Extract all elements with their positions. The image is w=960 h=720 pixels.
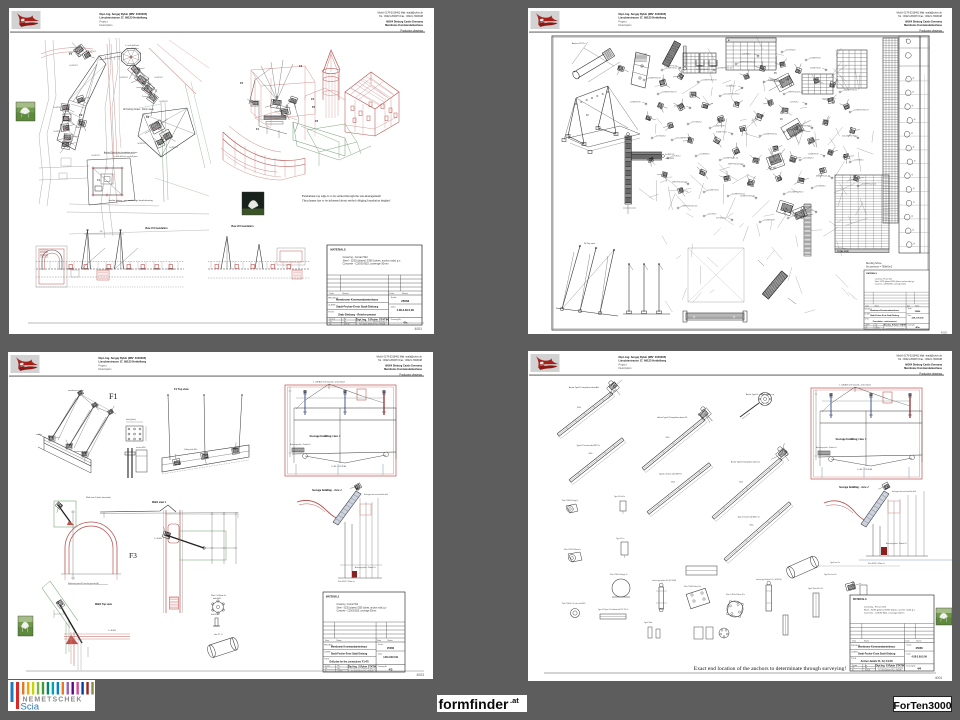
svg-text:Stadt-Fecher-Erste Stadt Dieb: Stadt-Fecher-Erste Stadt Dieburg: [336, 306, 379, 309]
svg-text:1xDMPS/12: 1xDMPS/12: [169, 147, 178, 149]
svg-text:4/4: 4/4: [917, 667, 921, 671]
svg-text:F6: F6: [146, 115, 150, 119]
svg-text:Dipl.-Ing. Sergej Rybin (MN: Dipl.-Ing. Sergej Rybin (MN° 4046305): [619, 355, 667, 359]
svg-text:Date:: Date:: [378, 652, 383, 655]
svg-text:2xTWQ/12: 2xTWQ/12: [692, 122, 702, 124]
svg-text:Stadt-Fecher-Erste Stadt Dieb: Stadt-Fecher-Erste Stadt Dieburg: [858, 652, 896, 655]
svg-text:formfinder: formfinder: [439, 696, 510, 712]
svg-text:2xTWQ/12: 2xTWQ/12: [804, 158, 814, 160]
svg-text:F6: F6: [780, 119, 783, 121]
svg-text:Storage building view 1: Storage building view 1: [835, 437, 866, 441]
svg-text:Steel - S235 (plates) S355 (: Steel - S235 (plates) S355 (tubes, ancho…: [875, 280, 915, 283]
svg-text:F3: F3: [129, 551, 137, 560]
svg-text:F6 Top view: F6 Top view: [584, 243, 596, 245]
svg-text:4004: 4004: [935, 676, 942, 680]
svg-text:anchor: anchor: [36, 433, 42, 436]
svg-text:Anchor T07 1x: Anchor T07 1x: [572, 42, 586, 45]
svg-text:2xDM/70/12: 2xDM/70/12: [716, 132, 728, 134]
svg-text:Steel - S235 (plates) S355 (: Steel - S235 (plates) S355 (tubes, ancho…: [337, 606, 388, 609]
svg-text:Plate T100/10 fixing 1x: Plate T100/10 fixing 1x: [562, 499, 578, 502]
svg-text:1xGMS/12: 1xGMS/12: [816, 186, 826, 188]
svg-text:MATERIALS: MATERIALS: [326, 595, 340, 598]
svg-text:Membrane Kommandantenhaus: Membrane Kommandantenhaus: [384, 368, 423, 371]
svg-text:1xDMPS/70: 1xDMPS/70: [810, 58, 822, 60]
svg-text:Tel.: 06221-830673 Fax.: 06: Tel.: 06221-830673 Fax.: 06221-7903048: [898, 358, 943, 361]
svg-text:2xS-DMPS/70/12: 2xS-DMPS/70/12: [788, 192, 804, 194]
svg-text:F2: F2: [240, 81, 244, 85]
svg-text:Tel.: 06221-830673 Fax.: 06: Tel.: 06221-830673 Fax.: 06221-7903048: [378, 359, 423, 362]
svg-text:1xDMPS/12: 1xDMPS/12: [159, 101, 168, 103]
svg-text:Steel - S235 (plates) S355 (: Steel - S235 (plates) S355 (tubes, ancho…: [864, 609, 916, 612]
svg-text:Wall1 view 1: Wall1 view 1: [152, 501, 167, 504]
svg-text:Plate T100/10 60mm 1x: Plate T100/10 60mm 1x: [564, 548, 581, 551]
svg-text:4003: 4003: [416, 673, 424, 677]
svg-text:F1: F1: [97, 178, 101, 182]
svg-text:TITLE:: TITLE:: [851, 658, 857, 660]
svg-text:Description: Description: [619, 23, 633, 27]
svg-text:1xTWQ/70/120: 1xTWQ/70/120: [696, 69, 709, 71]
svg-text:Concrete - C20/30 B25, cover: Concrete - C20/30 B25, coverage 50mm: [875, 282, 907, 285]
svg-text:3000: 3000: [589, 453, 593, 455]
svg-text:Lieschtestrasse 17, 69123 H: Lieschtestrasse 17, 69123 Heidelberg: [619, 359, 667, 363]
svg-text:tube P1 1x: tube P1 1x: [214, 633, 223, 636]
svg-text:Plan 4/202 1:2/floor 1x: Plan 4/202 1:2/floor 1x: [338, 580, 355, 583]
svg-text:1xDMPS/70: 1xDMPS/70: [630, 102, 642, 104]
svg-text:Lieschtestrasse 17, 69123 H: Lieschtestrasse 17, 69123 Heidelberg: [100, 16, 148, 20]
svg-text:2xS-DMPS/70/12: 2xS-DMPS/70/12: [724, 94, 740, 96]
svg-text:Concrete - C20/30 B25, cover: Concrete - C20/30 B25, coverage 50mm: [864, 612, 905, 615]
svg-text:Anchor plates - see anchorage: Anchor plates - see anchorage bond drawi…: [108, 199, 153, 202]
svg-text:3xDMPS-5/1,20: 3xDMPS-5/1,20: [718, 68, 733, 70]
svg-text:Description: Description: [619, 366, 633, 370]
svg-text:1xS70/12: 1xS70/12: [790, 102, 799, 104]
svg-text:Plate T100/4 60mm 10x: Plate T100/4 60mm 10x: [684, 585, 701, 588]
svg-text:Tel.: 06221-830673 Fax.: 06: Tel.: 06221-830673 Fax.: 06221-7903048: [898, 15, 943, 18]
svg-text:anchor appl. bushes 0.1+ (F2,F: anchor appl. bushes 0.1+ (F2,F4 M): [756, 579, 782, 581]
svg-text:bolt M d20: bolt M d20: [211, 613, 219, 616]
svg-text:1 x Ø6 A2S 1/10 turnumb - 4/10: 1 x Ø6 A2S 1/10 turnumb - 4/10 embed: [839, 384, 870, 387]
svg-text:2xDM/70/12: 2xDM/70/12: [666, 68, 678, 70]
svg-text:Anchor Type/0.3 fixings/base a: Anchor Type/0.3 fixings/base above 4x: [731, 461, 760, 464]
svg-text:drill upper the anchored bar d: drill upper the anchored bar drill: [364, 493, 388, 496]
svg-text:Fundament top edge is to be se: Fundament top edge is to be settled thro…: [302, 194, 381, 198]
svg-text:drill upper the anchored bar d: drill upper the anchored bar drill: [892, 490, 916, 493]
svg-text:Anchor Type/0.1 fixings/base a: Anchor Type/0.1 fixings/base above/Anc: [569, 386, 599, 389]
svg-text:1xDMPS/70: 1xDMPS/70: [808, 154, 820, 156]
svg-text:2xDMPS70/12: 2xDMPS70/12: [764, 134, 778, 136]
svg-text:Covering - Ferrari 502: Covering - Ferrari 502: [337, 603, 359, 606]
svg-text:4/a: 4/a: [403, 321, 408, 325]
svg-text:Membrane Kommandantenhaus: Membrane Kommandantenhaus: [336, 298, 379, 302]
svg-text:Type of tension tube 88/57 1x: Type of tension tube 88/57 1x: [738, 516, 760, 519]
svg-text:Tel. 06221-830673 Fax. 790304: Tel. 06221-830673 Fax. 7903048: [351, 670, 374, 672]
svg-text:Date:: Date:: [906, 652, 911, 655]
svg-text:2xDMPS70/12: 2xDMPS70/12: [648, 78, 662, 80]
svg-text:DMPS70/12/1,20: DMPS70/12/1,20: [682, 206, 698, 208]
svg-text:F6: F6: [315, 119, 319, 123]
svg-text:Anchor details F1, F2, F4>F6: Anchor details F1, F2, F4>F6: [861, 660, 894, 663]
svg-text:TITLE:: TITLE:: [324, 658, 330, 660]
svg-text:1xDMPS/12: 1xDMPS/12: [154, 77, 163, 79]
svg-text:The planner has to be informed: The planner has to be informed about set…: [302, 199, 390, 203]
svg-text:Drawing-Nr:: Drawing-Nr:: [378, 665, 388, 668]
svg-text:1xGMS/12: 1xGMS/12: [674, 106, 684, 108]
svg-text:DMPS70/12/1,20: DMPS70/12/1,20: [672, 182, 688, 184]
svg-text:Project: Project: [100, 19, 108, 23]
svg-text:3xDMPS-5/1,20: 3xDMPS-5/1,20: [862, 184, 877, 186]
svg-text:Project: Project: [99, 363, 107, 367]
svg-text:TITLE:: TITLE:: [865, 319, 870, 321]
svg-text:Scale:: Scale:: [391, 297, 398, 299]
svg-text:Wall view 1 (back elevation): Wall view 1 (back elevation): [86, 496, 111, 499]
svg-text:TOTAL S235: TOTAL S235: [837, 250, 850, 253]
svg-text:Anchor Type/0.2 fixings/base a: Anchor Type/0.2 fixings/base above 0/6: [658, 416, 688, 419]
svg-text:1xS70/12: 1xS70/12: [672, 156, 681, 158]
svg-text:Drill plan for the connections: Drill plan for the connections F1>F5: [329, 660, 369, 663]
svg-text:2xTWQ/12: 2xTWQ/12: [786, 50, 796, 52]
svg-text:Scia: Scia: [21, 702, 40, 712]
svg-text:Membrane Kommandantenhaus: Membrane Kommandantenhaus: [904, 24, 943, 27]
svg-text:F1: F1: [256, 127, 260, 131]
svg-text:3xDMPS-5/1,20: 3xDMPS-5/1,20: [724, 158, 739, 160]
svg-text:Type2 Stub: Type2 Stub: [644, 621, 652, 624]
svg-text:Scale:: Scale:: [378, 644, 384, 646]
svg-text:1xS70/12: 1xS70/12: [742, 54, 751, 56]
svg-text:Anchorage plate - Podest 0.0: Anchorage plate - Podest 0.0: [886, 542, 907, 545]
svg-text:Set pressure = 760kN/m2: Set pressure = 760kN/m2: [866, 266, 893, 269]
svg-text:Plan 4/202 1:2/floor 1x: Plan 4/202 1:2/floor 1x: [868, 562, 885, 565]
svg-text:bolts M16: bolts M16: [213, 597, 221, 600]
svg-text:Stab-Dieburg - Reinforcement: Stab-Dieburg - Reinforcement: [338, 314, 376, 317]
svg-text:View #1 Foundation: View #1 Foundation: [145, 227, 168, 230]
svg-text:Membrane Kommandantenhaus: Membrane Kommandantenhaus: [904, 367, 943, 370]
svg-text:3xDMPS-5/1,20: 3xDMPS-5/1,20: [816, 176, 831, 178]
svg-text:Scale:: Scale:: [908, 308, 913, 310]
svg-text:25066: 25066: [915, 311, 920, 313]
svg-text:1 x M d20: 1 x M d20: [108, 630, 116, 632]
svg-text:1xDMPS/70/170: 1xDMPS/70/170: [740, 196, 755, 198]
svg-text:Plate T100/0.4 1x cab. cab d20: Plate T100/0.4 1x cab. cab d20/2: [562, 602, 585, 605]
svg-text:1xDMPS/70/170: 1xDMPS/70/170: [662, 92, 677, 94]
svg-text:1 x Ø5 - 2/20 S M6: 1 x Ø5 - 2/20 S M6: [331, 466, 346, 468]
svg-text:25066: 25066: [401, 299, 410, 303]
svg-text:Lieschtestrasse 17, 69123 H: Lieschtestrasse 17, 69123 Heidelberg: [619, 16, 667, 20]
svg-text:1xDMPS/12: 1xDMPS/12: [137, 143, 146, 145]
svg-text:F7: F7: [69, 52, 73, 56]
svg-text:1xGMS/12: 1xGMS/12: [854, 160, 864, 162]
svg-text:Stadt-Fecher-Erste Stadt Dieb: Stadt-Fecher-Erste Stadt Dieburg: [331, 652, 368, 655]
svg-text:1xDMPS/12: 1xDMPS/12: [53, 131, 62, 133]
svg-text:Stadt-Fecher-Erste Stadt Dieb: Stadt-Fecher-Erste Stadt Dieburg: [870, 314, 899, 317]
svg-text:Bending Schue: Bending Schue: [866, 263, 882, 265]
svg-text:MATERIALS: MATERIALS: [866, 272, 877, 275]
svg-text:1xDMPS/12: 1xDMPS/12: [91, 155, 100, 157]
svg-text:Type4 lock nut 1x: Type4 lock nut 1x: [824, 573, 837, 576]
svg-text:4.08-3.09.5.09: 4.08-3.09.5.09: [912, 317, 924, 320]
svg-text:1xS70/12: 1xS70/12: [708, 214, 717, 216]
svg-text:Type 0.1 1x: Type 0.1 1x: [616, 538, 624, 540]
svg-text:4.08-3.09.5.09: 4.08-3.09.5.09: [383, 656, 399, 659]
svg-text:Tel.: 06221-830673 Fax.: 06: Tel.: 06221-830673 Fax.: 06221-7903048: [379, 15, 424, 18]
svg-text:Type 0 0.3m 1x: Type 0 0.3m 1x: [614, 496, 625, 498]
svg-text:Anchorage plate - Podest 0.0: Anchorage plate - Podest 0.0: [355, 566, 376, 569]
svg-text:Z4: Z4: [311, 97, 315, 101]
svg-text:Type1 Tube d20 1.5x: Type1 Tube d20 1.5x: [808, 588, 823, 590]
svg-text:Drawing-Nr:: Drawing-Nr:: [391, 318, 402, 321]
svg-text:MATERIALS: MATERIALS: [330, 249, 346, 252]
svg-text:Scale:: Scale:: [906, 644, 912, 646]
svg-text:Dipl.Ing. S.Rybin STATIK: Dipl.Ing. S.Rybin STATIK: [884, 324, 907, 327]
svg-text:S.R.W: S.R.W: [865, 670, 870, 672]
svg-text:Plate J d214 x120mm 50 x: Plate J d214 x120mm 50 x: [726, 593, 745, 596]
svg-text:3000: 3000: [750, 525, 754, 527]
svg-text:Foundation - reinforcement: Foundation - reinforcement: [873, 320, 897, 323]
svg-text:25066: 25066: [387, 646, 395, 650]
svg-text:4002: 4002: [941, 331, 948, 335]
svg-text:MATERIALS: MATERIALS: [853, 598, 867, 601]
svg-text:Tel. 06221-830673 Fax. 790304: Tel. 06221-830673 Fax. 7903048: [886, 328, 904, 330]
svg-text:Covering - Ferrari 502: Covering - Ferrari 502: [875, 278, 892, 281]
svg-text:1xDMPS/70/170: 1xDMPS/70/170: [854, 110, 869, 112]
svg-text:Storage building - view 2: Storage building - view 2: [839, 486, 869, 489]
svg-text:Dipl.Ing. S.Rybin STATIK: Dipl.Ing. S.Rybin STATIK: [876, 665, 905, 668]
svg-text:2xDMPS70/12: 2xDMPS70/12: [844, 90, 858, 92]
svg-text:Type 0.1/Type 0.3 standard rod: Type 0.1/Type 0.3 standard rod D27 2.8 7…: [598, 608, 628, 611]
svg-text:ForTen3000: ForTen3000: [894, 700, 952, 712]
svg-text:F1: F1: [109, 392, 117, 401]
svg-text:1xGMS/12: 1xGMS/12: [700, 154, 710, 156]
svg-text:2xS-DMPS/70/12: 2xS-DMPS/70/12: [842, 136, 858, 138]
svg-text:Membrane Kommandantenhaus: Membrane Kommandantenhaus: [385, 24, 424, 27]
svg-text:DMPS70/12/1,20: DMPS70/12/1,20: [740, 62, 756, 64]
svg-text:All footing holes - 40cm deep: All footing holes - 40cm deep: [123, 108, 155, 111]
svg-text:1xDMPS/12: 1xDMPS/12: [75, 127, 84, 129]
svg-text:Dipl.-Ing. Sergej Rybin (MN: Dipl.-Ing. Sergej Rybin (MN° 4046305): [100, 12, 148, 16]
svg-text:Plate T100/0.4 flange 2x: Plate T100/0.4 flange 2x: [610, 573, 627, 576]
svg-text:Date:: Date:: [391, 306, 397, 309]
svg-text:Lieschtestrasse 17, 69123 H: Lieschtestrasse 17, 69123 Heidelberg: [99, 360, 147, 364]
svg-text:F2: F2: [586, 115, 589, 117]
svg-text:Anchorage plate - Podest 0.0: Anchorage plate - Podest 0.0: [290, 443, 311, 446]
svg-text:1xDMPS/70/170: 1xDMPS/70/170: [702, 80, 717, 82]
svg-text:3000: 3000: [671, 482, 675, 484]
svg-text:Membrane Kommandantenhaus: Membrane Kommandantenhaus: [331, 645, 368, 648]
svg-text:2xTWQ/12: 2xTWQ/12: [716, 218, 726, 220]
svg-text:Drawing-Nr:: Drawing-Nr:: [906, 665, 916, 667]
svg-text:Concrete - C20/30 B25, cover: Concrete - C20/30 B25, coverage 50mm: [337, 610, 377, 613]
svg-text:Storage building view 1: Storage building view 1: [309, 434, 340, 438]
svg-text:anchor M24: anchor M24: [136, 447, 146, 449]
svg-text:membrane corner: membrane corner: [68, 390, 84, 392]
svg-text:1 x wall drill hole: 1 x wall drill hole: [125, 44, 139, 47]
svg-text:Dipl.-Ing. Sergej Rybin (MN: Dipl.-Ing. Sergej Rybin (MN° 4046305): [619, 12, 667, 16]
svg-text:3000: 3000: [666, 437, 670, 439]
svg-text:Plate 2 x 80mm 5x: Plate 2 x 80mm 5x: [211, 594, 226, 597]
svg-text:1 x Ø5 - 2/20 S M6: 1 x Ø5 - 2/20 S M6: [857, 469, 872, 471]
svg-text:see drill plans: see drill plans: [127, 47, 139, 50]
svg-text:F1 Top view: F1 Top view: [174, 387, 190, 391]
svg-text:Exact end location of the anch: Exact end location of the anchors to det…: [694, 665, 847, 672]
svg-text:1 x Ø6 A2S 1/10 turnumb - 4/10: 1 x Ø6 A2S 1/10 turnumb - 4/10 embed: [313, 381, 344, 384]
svg-text:DMPS70/12/1,20: DMPS70/12/1,20: [728, 164, 744, 166]
svg-text:3000: 3000: [739, 482, 743, 484]
svg-text:detail (plate): detail (plate): [126, 418, 136, 421]
svg-text:1xDMPS/12: 1xDMPS/12: [87, 51, 96, 53]
svg-text:1xGMS/12: 1xGMS/12: [726, 86, 736, 88]
svg-text:TITLE:: TITLE:: [328, 311, 335, 313]
svg-text:25066: 25066: [916, 647, 924, 650]
svg-text:1 x wall drill hole see drill: 1 x wall drill hole see drill plans: [113, 156, 138, 158]
svg-text:1xDMPS/12: 1xDMPS/12: [69, 65, 78, 67]
svg-text:Drilling hole Ø2a: Drilling hole Ø2a: [184, 449, 197, 451]
svg-text:Membrane Kommandantenhaus: Membrane Kommandantenhaus: [870, 309, 899, 312]
svg-text:Type/0.2 tension tube 88/57 1x: Type/0.2 tension tube 88/57 1x: [659, 473, 682, 476]
svg-text:Tel. 06221-830673 Fax. 790304: Tel. 06221-830673 Fax. 7903048: [878, 669, 901, 671]
svg-text:Description: Description: [100, 23, 114, 27]
svg-text:4.08-3.09.5.09: 4.08-3.09.5.09: [912, 656, 928, 659]
svg-text:anchor appl. plates F1c (F2,F4: anchor appl. plates F1c (F2,F4 M): [652, 579, 676, 582]
svg-text:Drawn: Drawn: [329, 318, 335, 321]
svg-text:.at: .at: [510, 696, 519, 705]
svg-text:1xDMPS/70: 1xDMPS/70: [764, 220, 776, 222]
svg-text:4001: 4001: [414, 327, 422, 331]
svg-text:4.08-3.09.5.09: 4.08-3.09.5.09: [397, 309, 415, 312]
svg-text:Dipl.-Ing. Sergej Rybin (MN: Dipl.-Ing. Sergej Rybin (MN° 4046305): [99, 356, 147, 360]
svg-text:2xTWQ/12: 2xTWQ/12: [656, 136, 666, 138]
svg-text:S.R.W: S.R.W: [344, 324, 350, 326]
svg-text:Membrane Kommandantenhaus: Membrane Kommandantenhaus: [858, 646, 896, 649]
svg-text:anchorage point: anchorage point: [74, 450, 88, 453]
svg-text:1xDMPS/12: 1xDMPS/12: [119, 77, 128, 79]
svg-text:F2: F2: [79, 113, 83, 117]
svg-text:Anchorage plate - Podest 0.0: Anchorage plate - Podest 0.0: [816, 446, 837, 449]
svg-text:Concrete - C20/30 B25, cover: Concrete - C20/30 B25, coverage 50mm: [343, 263, 389, 266]
svg-text:1xDMPS/12: 1xDMPS/12: [53, 107, 62, 109]
svg-text:2xS-DMPS/70/12: 2xS-DMPS/70/12: [676, 138, 692, 140]
svg-text:Anchor Type/0.1 s 12 bolts/pro: Anchor Type/0.1 s 12 bolts/profile cap: [746, 393, 774, 396]
svg-text:Type0 nut 1x: Type0 nut 1x: [830, 561, 840, 564]
svg-text:Description: Description: [99, 367, 113, 371]
svg-text:View #2 Foundation: View #2 Foundation: [231, 225, 254, 228]
svg-text:2xDM/70/12: 2xDM/70/12: [810, 68, 822, 70]
svg-text:Wall1 Top view: Wall1 Top view: [95, 603, 112, 606]
svg-text:1 x M d20: 1 x M d20: [154, 538, 162, 540]
svg-text:Type/0.1 Tension tube 88/57 1x: Type/0.1 Tension tube 88/57 1x: [577, 444, 601, 447]
svg-text:2xDM/70/12: 2xDM/70/12: [708, 190, 720, 192]
svg-text:1xDMPS/70: 1xDMPS/70: [714, 126, 726, 128]
svg-text:Covering - Ferrari 502: Covering - Ferrari 502: [864, 605, 887, 608]
svg-text:Project: Project: [619, 19, 627, 23]
svg-text:Dipl.Ing. S.Rybin STATIK: Dipl.Ing. S.Rybin STATIK: [348, 665, 376, 668]
svg-text:3000: 3000: [577, 407, 581, 409]
svg-text:Tel. 06221-830673 Fax. 790304: Tel. 06221-830673 Fax. 7903048: [359, 323, 385, 325]
svg-text:Project: Project: [619, 362, 627, 366]
svg-text:Storage building - view 2: Storage building - view 2: [312, 489, 342, 492]
svg-text:F5: F5: [774, 73, 777, 75]
svg-text:700: 700: [100, 231, 103, 233]
